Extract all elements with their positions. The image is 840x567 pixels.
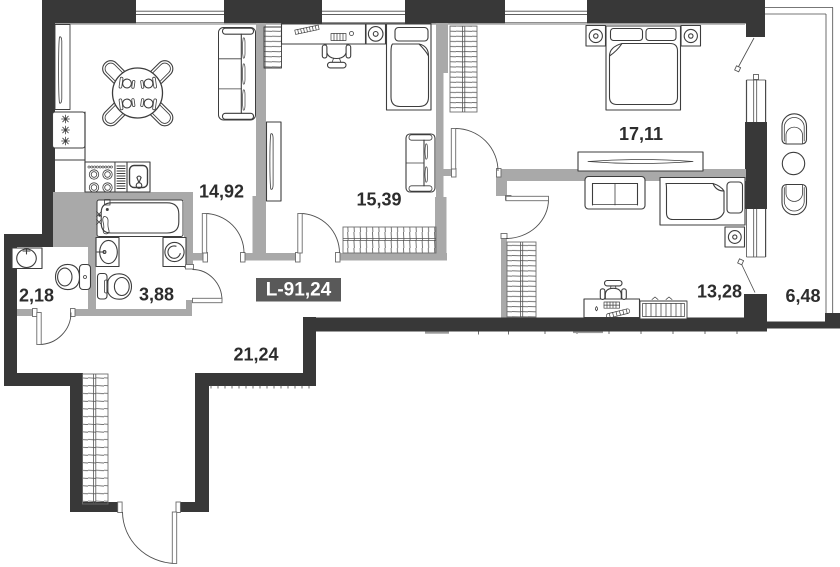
svg-text:6,48: 6,48 xyxy=(785,286,820,306)
svg-text:17,11: 17,11 xyxy=(619,124,663,144)
svg-text:13,28: 13,28 xyxy=(697,282,742,302)
svg-text:21,24: 21,24 xyxy=(233,345,278,365)
svg-text:3,88: 3,88 xyxy=(139,285,174,305)
svg-text:15,39: 15,39 xyxy=(356,190,401,210)
svg-text:14,92: 14,92 xyxy=(199,182,244,202)
svg-text:L-91,24: L-91,24 xyxy=(266,280,332,301)
svg-text:2,18: 2,18 xyxy=(19,286,54,306)
